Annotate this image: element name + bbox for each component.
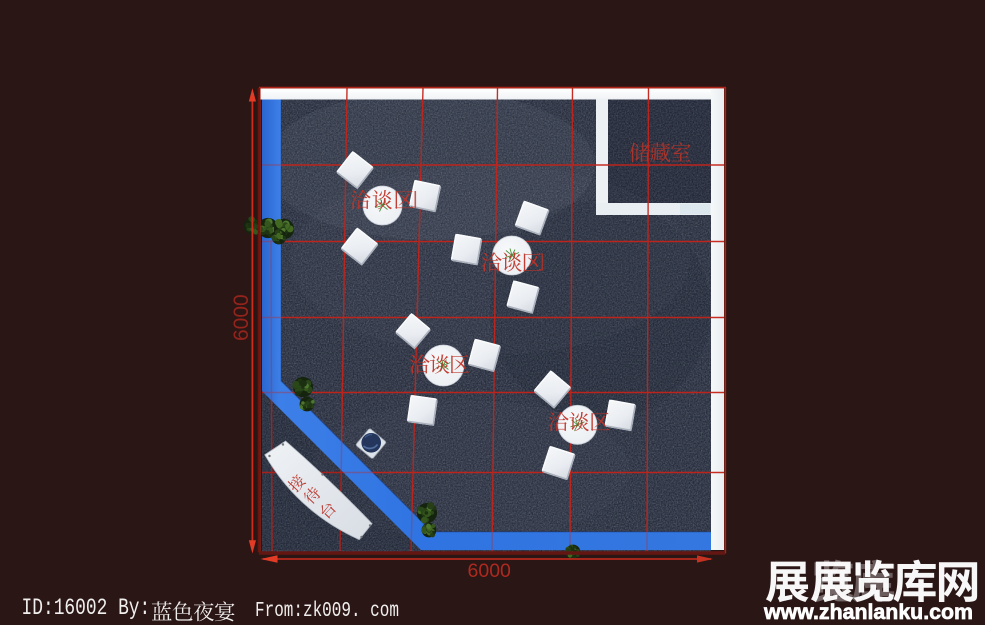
svg-text:From:zk009. com: From:zk009. com — [255, 599, 399, 623]
svg-text:www.zhanlanku.com: www.zhanlanku.com — [763, 600, 973, 624]
svg-text:ID:16002 By:: ID:16002 By: — [22, 596, 151, 622]
svg-text:6000: 6000 — [468, 560, 512, 582]
svg-text:6000: 6000 — [230, 294, 253, 341]
